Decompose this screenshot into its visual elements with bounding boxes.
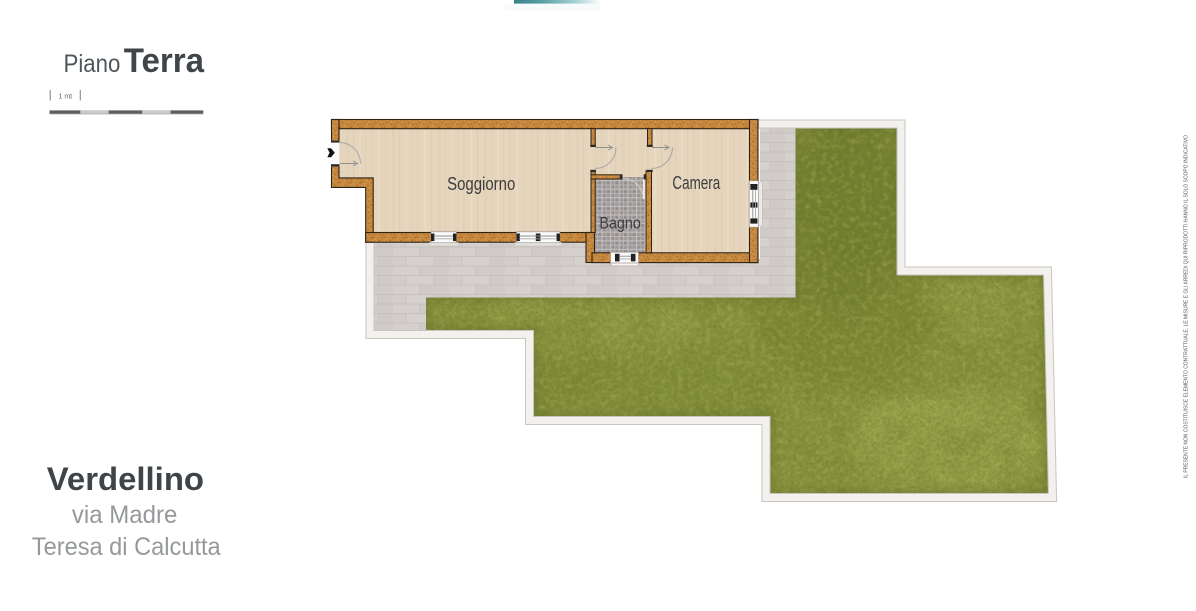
svg-text:Soggiorno: Soggiorno: [447, 174, 515, 194]
svg-text:Teresa di Calcutta: Teresa di Calcutta: [32, 533, 221, 561]
svg-text:Verdellino: Verdellino: [47, 461, 204, 497]
svg-text:Bagno: Bagno: [599, 214, 640, 233]
svg-text:Camera: Camera: [672, 173, 721, 193]
svg-text:via Madre: via Madre: [72, 501, 177, 529]
svg-text:Terra: Terra: [124, 42, 205, 80]
svg-text:1 mt: 1 mt: [58, 94, 72, 101]
svg-text:IL PRESENTE NON COSTITUISCE EL: IL PRESENTE NON COSTITUISCE ELEMENTO CON…: [1184, 135, 1190, 478]
svg-text:Piano: Piano: [64, 50, 121, 78]
